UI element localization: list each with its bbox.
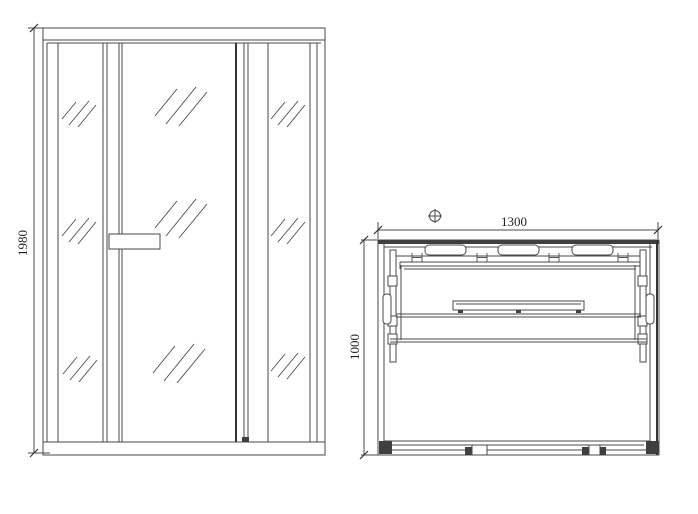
glass-hatch-icon — [153, 344, 205, 383]
pad-bracket-icon — [618, 253, 628, 262]
front-elevation-view: 1980 — [15, 24, 325, 457]
glass-hatch-icon — [62, 218, 96, 244]
door-handle — [109, 234, 160, 249]
backrest-pads — [412, 245, 628, 262]
bench — [390, 301, 647, 342]
door-bottom-guide — [242, 437, 249, 442]
pad-bracket-icon — [477, 253, 487, 262]
plan-outer-wall — [378, 240, 659, 455]
door-roller-housing — [589, 445, 600, 455]
glass-hatch-icon — [155, 199, 207, 238]
drawing-canvas: 1980 — [0, 0, 698, 514]
backrest-pad — [425, 245, 466, 255]
dimension-label-width: 1300 — [501, 214, 527, 229]
pad-bracket-icon — [412, 253, 422, 262]
backrest-rail — [396, 256, 644, 269]
front-frame — [43, 28, 325, 455]
plan-top-wall — [378, 240, 659, 244]
plan-width-dimension: 1300 — [374, 214, 662, 239]
right-side-board — [640, 250, 646, 362]
right-side-pad — [646, 294, 654, 324]
front-height-dimension: 1980 — [15, 24, 50, 457]
backrest-pad — [572, 245, 613, 255]
plan-view: 1300 1000 — [347, 209, 662, 459]
glass-hatch-icon — [62, 101, 96, 127]
glass-hatch-icon — [271, 218, 305, 244]
board-clip — [638, 276, 647, 286]
center-mark-icon — [428, 209, 442, 223]
board-clip — [388, 276, 397, 286]
door-roller — [600, 447, 606, 455]
glass-hatch-icon — [155, 87, 207, 126]
left-side-pad — [383, 294, 391, 324]
dimension-label-height: 1980 — [15, 230, 30, 256]
glass-hatch-icon — [271, 353, 305, 379]
pad-bracket-icon — [549, 253, 559, 262]
dimension-label-depth: 1000 — [347, 334, 362, 360]
glass-hatch-icon — [271, 101, 305, 127]
front-glass-hatches — [62, 87, 305, 383]
backrest-pad — [498, 245, 539, 255]
door-roller — [465, 447, 472, 455]
corner-block — [646, 441, 659, 454]
bench-tray — [453, 301, 584, 310]
door-roller-housing — [472, 445, 487, 455]
glass-hatch-icon — [63, 356, 97, 382]
door-roller — [582, 447, 589, 455]
plan-walls — [378, 240, 659, 455]
door-track — [379, 441, 659, 455]
front-outer-frame — [43, 28, 325, 455]
plan-depth-dimension: 1000 — [347, 236, 378, 459]
corner-block — [379, 441, 392, 454]
